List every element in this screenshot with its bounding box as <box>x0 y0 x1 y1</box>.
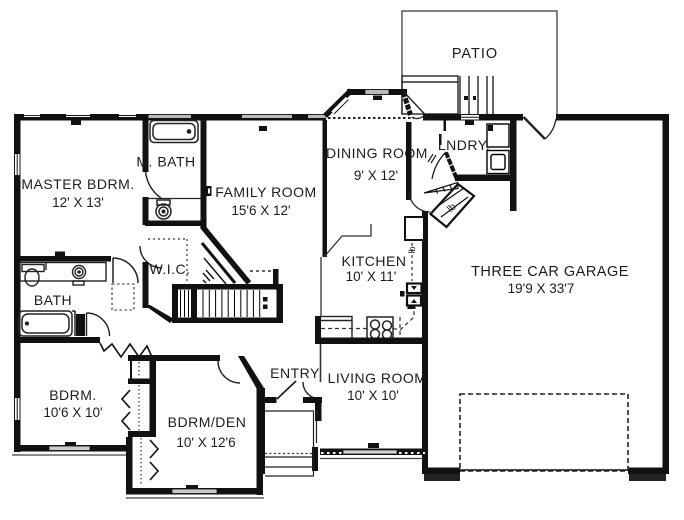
svg-text:FAMILY ROOM: FAMILY ROOM <box>215 184 316 200</box>
svg-text:10'6 X 10': 10'6 X 10' <box>43 405 102 420</box>
svg-text:BDRM/DEN: BDRM/DEN <box>168 414 247 430</box>
svg-text:19'9 X 33'7: 19'9 X 33'7 <box>508 281 575 296</box>
svg-text:BDRM.: BDRM. <box>49 387 97 403</box>
svg-text:10' X 11': 10' X 11' <box>346 269 397 284</box>
svg-text:BATH: BATH <box>34 292 72 308</box>
svg-text:PATIO: PATIO <box>452 46 498 62</box>
svg-text:LNDRY.: LNDRY. <box>438 137 490 153</box>
svg-text:W.I.C.: W.I.C. <box>149 261 190 277</box>
svg-text:10' X 10': 10' X 10' <box>347 388 399 403</box>
svg-text:LIVING ROOM: LIVING ROOM <box>328 370 427 386</box>
svg-text:15'6 X 12': 15'6 X 12' <box>231 203 290 218</box>
svg-text:ENTRY: ENTRY <box>270 365 320 381</box>
svg-text:MASTER BDRM.: MASTER BDRM. <box>21 176 134 192</box>
svg-text:M. BATH: M. BATH <box>136 154 195 170</box>
svg-text:KITCHEN: KITCHEN <box>342 253 407 269</box>
svg-text:12' X 13': 12' X 13' <box>52 195 104 210</box>
svg-text:10' X 12'6: 10' X 12'6 <box>176 435 235 450</box>
svg-text:THREE CAR GARAGE: THREE CAR GARAGE <box>471 264 629 280</box>
svg-text:DINING ROOM: DINING ROOM <box>326 145 428 161</box>
svg-text:9' X 12': 9' X 12' <box>354 168 398 183</box>
svg-text:lb: lb <box>407 246 418 254</box>
